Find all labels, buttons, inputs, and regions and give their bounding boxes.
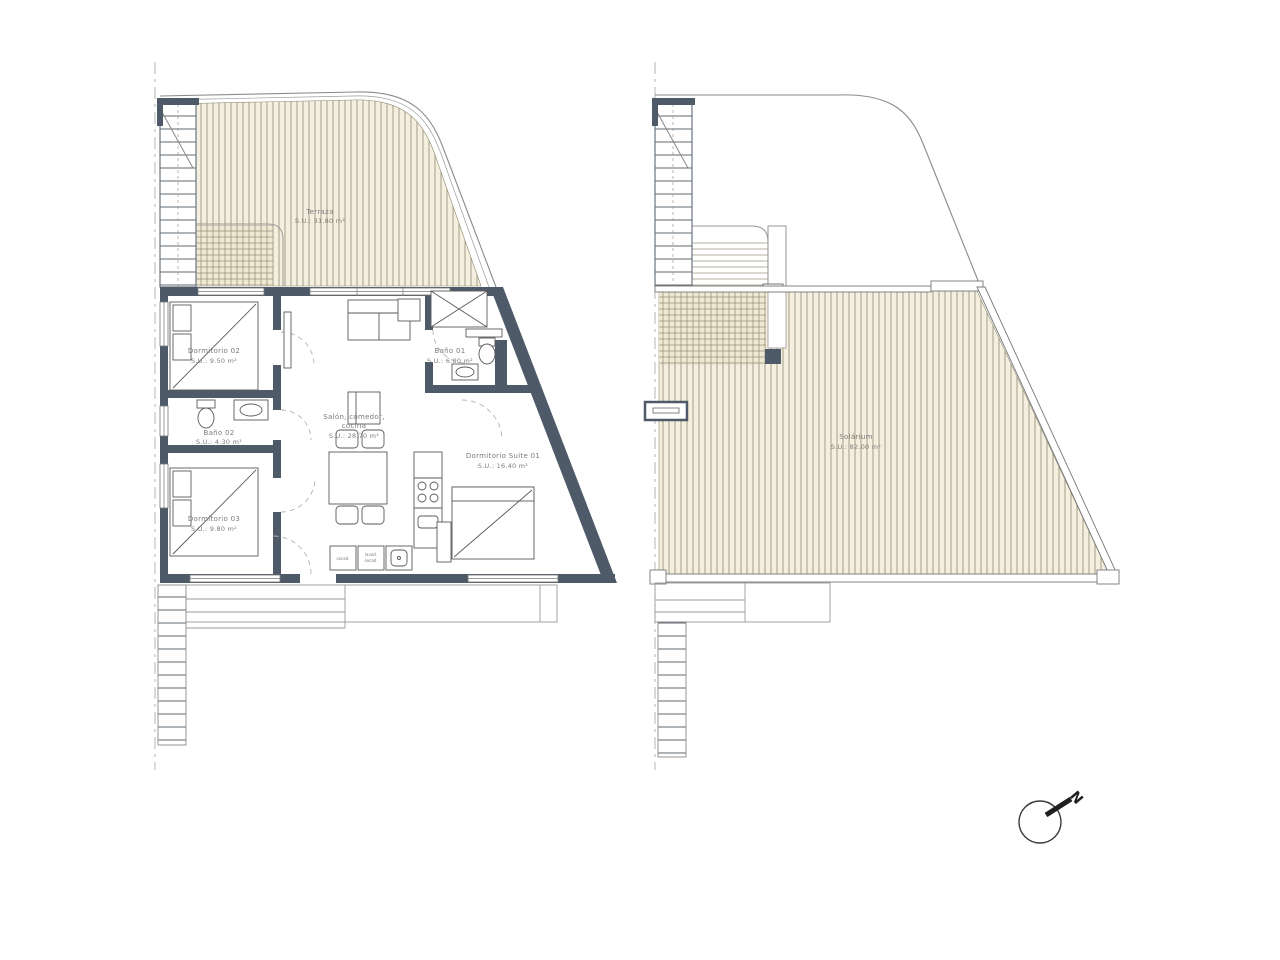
laundry-sink (386, 546, 412, 570)
porch-outline (182, 585, 557, 628)
room-area-dormitorio02: S.U.: 9.50 m² (191, 357, 237, 365)
north-label: N (1066, 788, 1086, 807)
wall-bano02-dorm03 (160, 445, 280, 453)
stair-side-wall-right (652, 98, 658, 126)
hob-burner (418, 482, 426, 490)
tv-unit (284, 312, 291, 368)
bed-dorm02 (170, 302, 258, 390)
room-label-terraza: Terraza (305, 208, 333, 216)
floor-plan-sheet: Terraza S.U.: 31.80 m² Dormitorio 02 S.U… (0, 0, 1280, 960)
exterior-stair-ladder (158, 585, 186, 745)
bed-dorm03 (170, 468, 258, 556)
chair (362, 506, 384, 524)
wall-dorm02-bano02 (160, 390, 280, 398)
north-arrow-icon: N (1019, 788, 1086, 843)
stair-bulkhead (768, 226, 786, 292)
sink-bano01 (452, 364, 478, 380)
floor-plan-left: Terraza S.U.: 31.80 m² Dormitorio 02 S.U… (155, 62, 617, 770)
room-label-dormitorio03: Dormitorio 03 (188, 515, 240, 523)
room-area-salon: S.U.: 28.70 m² (329, 432, 379, 440)
kitchen-sink (418, 516, 438, 528)
side-table (398, 299, 420, 321)
exterior-stair-ladder-right (658, 622, 686, 757)
wall-bano01-suite (425, 385, 535, 393)
hob-burner (430, 482, 438, 490)
room-area-bano02: S.U.: 4.30 m² (196, 438, 242, 446)
room-area-suite01: S.U.: 16.40 m² (478, 462, 528, 470)
wall-pier (495, 340, 507, 388)
chair (336, 506, 358, 524)
stair-head-wall-right (652, 98, 695, 105)
pergola-stripes (692, 240, 768, 287)
room-label-suite01: Dormitorio Suite 01 (466, 452, 540, 460)
suite-wardrobe (437, 522, 451, 562)
shower-bano01 (431, 291, 487, 327)
toilet-bano02 (197, 400, 215, 428)
room-area-solarium: S.U.: 82.00 m² (831, 443, 881, 451)
room-label-solarium: Solárium (839, 433, 872, 441)
solarium-steps-grid (659, 292, 766, 365)
solarium-bench (645, 402, 687, 420)
room-area-bano01: S.U.: 6.00 m² (427, 357, 473, 365)
room-label-salon-1: Salón, comedor, (323, 413, 384, 421)
hob-burner (418, 494, 426, 502)
toilet-bano01 (479, 338, 495, 364)
floor-plan-drawing: Terraza S.U.: 31.80 m² Dormitorio 02 S.U… (0, 0, 1280, 960)
sink-bano02 (234, 400, 268, 420)
room-label-salon-2: cocina (342, 422, 366, 430)
utility-label-2b: secad. (364, 558, 377, 563)
floor-plan-right: Solárium S.U.: 82.00 m² (645, 62, 1119, 770)
room-area-dormitorio03: S.U.: 9.80 m² (191, 525, 237, 533)
dining-table (329, 430, 387, 524)
room-label-dormitorio02: Dormitorio 02 (188, 347, 240, 355)
room-area-terraza: S.U.: 31.80 m² (295, 217, 345, 225)
room-label-bano02: Baño 02 (203, 429, 234, 437)
chimney-block (765, 349, 781, 364)
bulkhead-channel (768, 292, 786, 348)
lower-outline-right (655, 583, 830, 622)
hob-burner (430, 494, 438, 502)
staircase-right (655, 104, 692, 287)
bed-suite (452, 487, 534, 559)
stair-side-wall (157, 98, 163, 126)
room-label-bano01: Baño 01 (434, 347, 465, 355)
bath-shelf (466, 329, 502, 337)
stair-head-wall (157, 98, 199, 105)
utility-label-1: secad. (336, 556, 349, 561)
utility-label-2a: lavad. (365, 552, 377, 557)
